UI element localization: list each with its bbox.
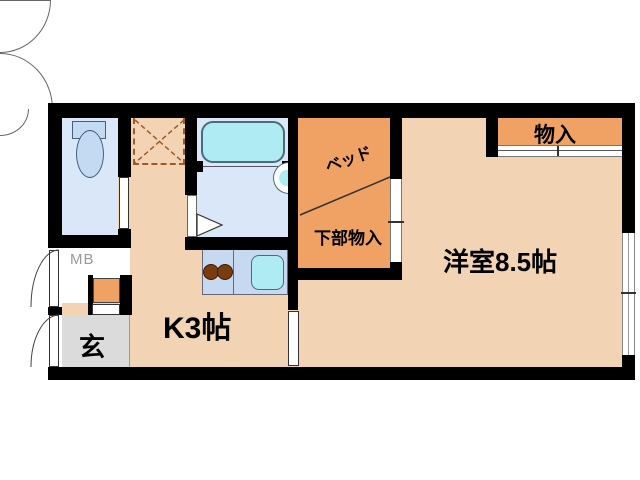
wall-bottom: [48, 367, 635, 380]
wall-kitchen-bed-divider: [288, 118, 298, 310]
stove-burner-icon: [217, 264, 233, 280]
label-entrance: 玄: [79, 327, 105, 364]
bed-alcove-opening-tick: [388, 221, 404, 223]
wall-right-lower: [622, 355, 635, 380]
kitchen-door-swing: [0, 53, 53, 109]
wall-left-pier: [48, 307, 62, 315]
wall-right-upper: [622, 103, 635, 233]
wall-bed-right-upper: [390, 103, 402, 179]
tub-divider-stub-left: [197, 161, 203, 172]
bath-sink-basin-icon: [279, 170, 288, 186]
label-kitchen: K3帖: [163, 303, 231, 347]
wall-top: [48, 103, 635, 118]
window-right-tick: [621, 292, 636, 294]
toilet-door-swing: [0, 0, 51, 53]
kitchen-door: [288, 311, 299, 366]
wall-bed-bottom: [288, 268, 402, 280]
entrance-door: [49, 315, 59, 367]
wall-toilet-right-upper: [118, 118, 131, 177]
bathroom-door: [187, 195, 197, 237]
wall-bath-left: [185, 118, 197, 195]
entrance-storage-door-swing: [0, 109, 29, 136]
entrance-storage-door: [92, 304, 120, 315]
label-western-room: 洋室8.5帖: [443, 242, 557, 279]
wall-closet-left: [486, 103, 498, 157]
label-meter-box: MB: [70, 251, 95, 268]
wall-left-upper: [48, 103, 62, 248]
kitchen-counter-divider: [233, 248, 234, 295]
bathtub-apron-line: [203, 166, 283, 167]
wall-toilet-right-lower: [118, 229, 131, 248]
entrance-storage-box: [93, 278, 120, 303]
toilet-door: [119, 177, 129, 229]
floor-plan: 洋室8.5帖 K3帖 ベッド 下部物入 物入 玄 MB: [0, 0, 640, 480]
washer-space-dashed-box: [133, 118, 185, 165]
closet-sliding-door-rail: [498, 150, 622, 151]
window-right-sash-line: [628, 233, 629, 355]
wall-bath-bottom: [185, 237, 298, 250]
toilet-bowl-icon: [76, 130, 104, 178]
label-closet: 物入: [534, 119, 576, 149]
wall-mb-box-right: [120, 275, 132, 315]
bathtub-icon: [201, 121, 285, 163]
meter-box-door: [49, 250, 59, 307]
label-under-bed-storage: 下部物入: [314, 224, 382, 249]
kitchen-sink-icon: [251, 255, 284, 290]
